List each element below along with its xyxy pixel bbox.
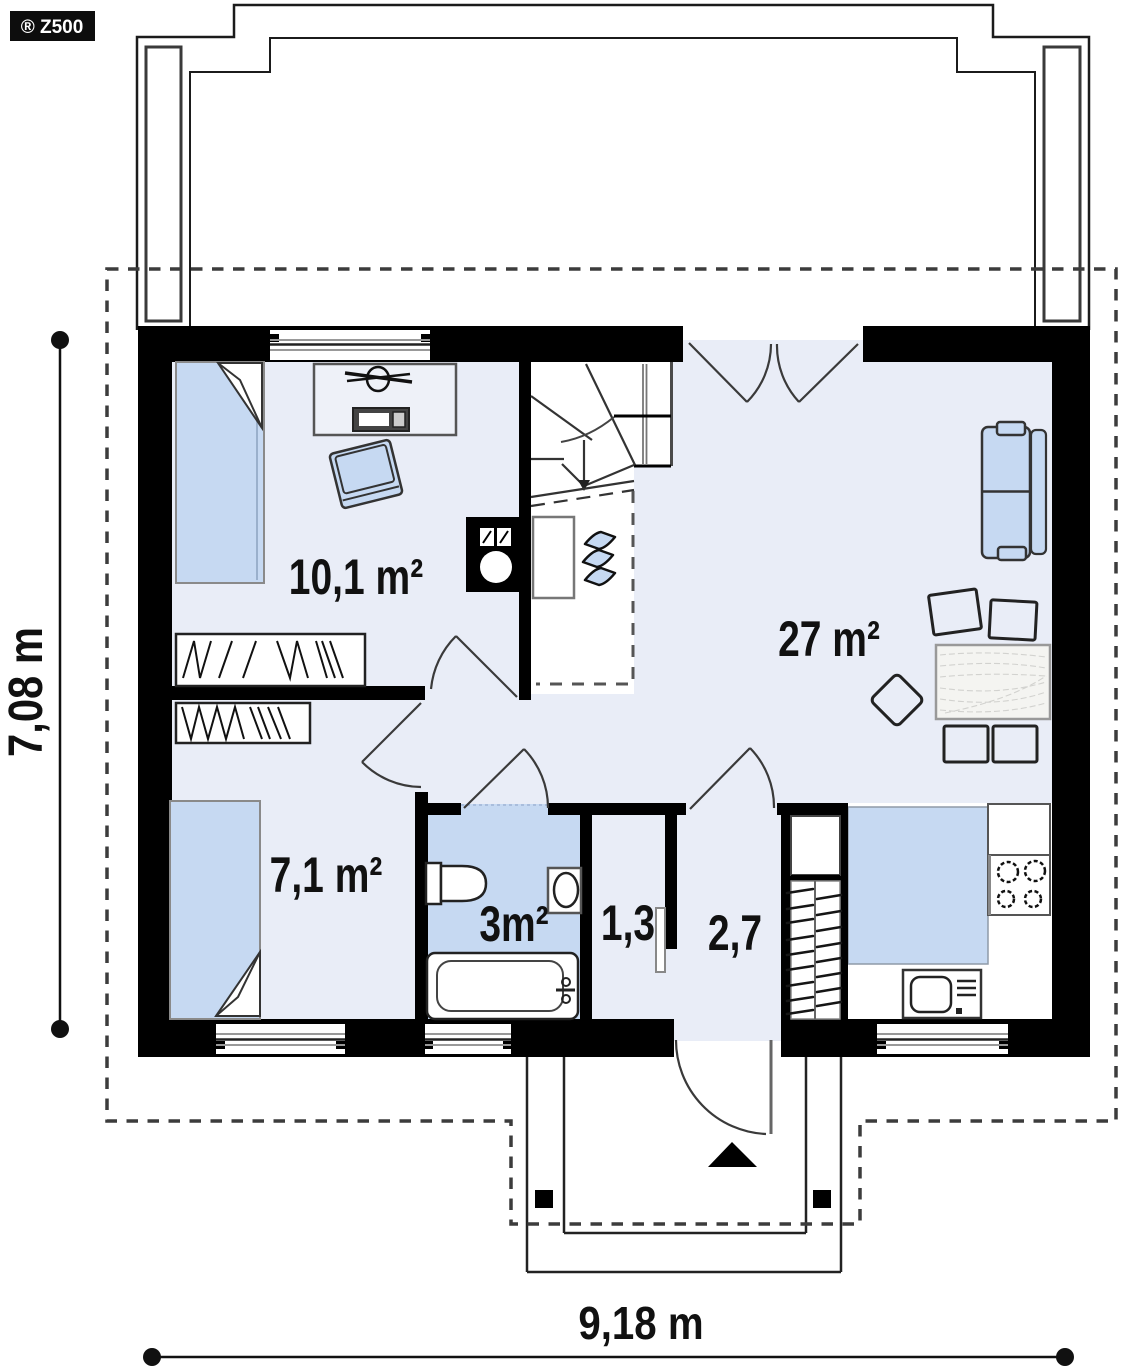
svg-text:9,18 m: 9,18 m xyxy=(578,1299,703,1350)
svg-text:7,08 m: 7,08 m xyxy=(0,627,53,757)
svg-text:10,1 m²: 10,1 m² xyxy=(289,548,423,605)
svg-text:2,7: 2,7 xyxy=(708,904,762,961)
svg-text:3m²: 3m² xyxy=(479,895,548,952)
svg-text:27 m²: 27 m² xyxy=(778,610,880,667)
svg-text:® Z500: ® Z500 xyxy=(21,17,84,38)
svg-text:7,1 m²: 7,1 m² xyxy=(270,846,383,903)
svg-text:1,3: 1,3 xyxy=(601,894,655,951)
